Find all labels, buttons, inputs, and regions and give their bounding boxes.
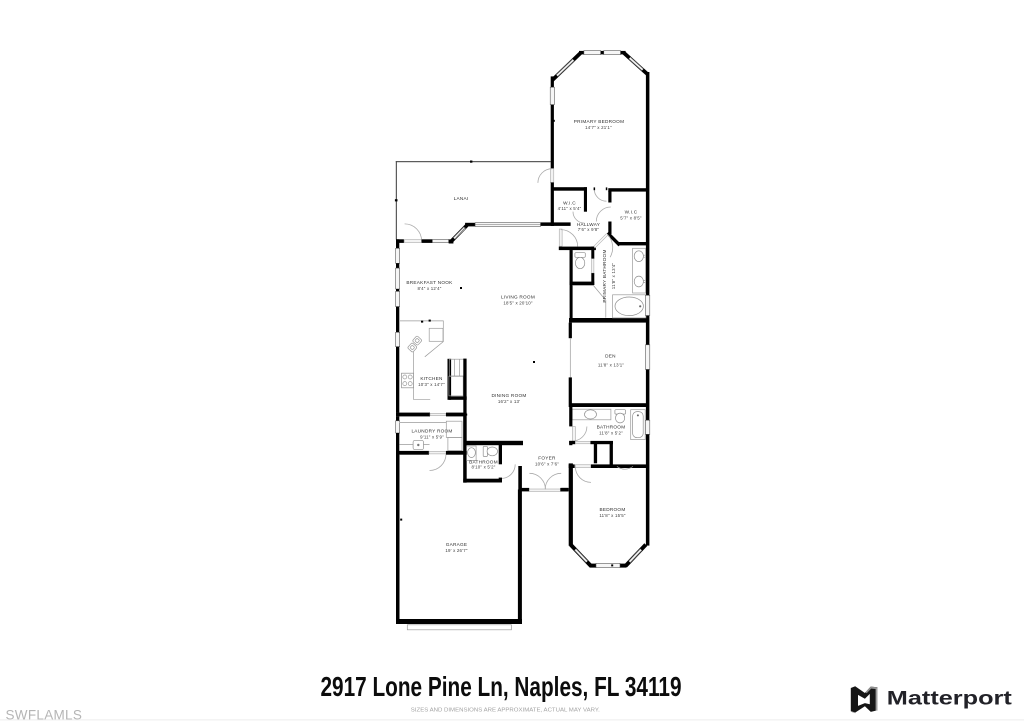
svg-text:5'7" x 8'5": 5'7" x 8'5" (620, 215, 642, 220)
svg-text:Matterport: Matterport (887, 688, 1013, 710)
svg-text:BEDROOM: BEDROOM (600, 507, 626, 512)
svg-text:LIVING ROOM: LIVING ROOM (501, 295, 535, 300)
svg-text:LANAI: LANAI (454, 196, 469, 201)
svg-text:HALLWAY: HALLWAY (577, 222, 601, 227)
svg-text:11'8" x 15'5": 11'8" x 15'5" (599, 513, 626, 518)
svg-text:8'4" x 12'4": 8'4" x 12'4" (417, 286, 441, 291)
svg-text:W.I.C: W.I.C (625, 209, 638, 214)
svg-text:9'11" x 5'9": 9'11" x 5'9" (420, 435, 444, 440)
svg-text:FOYER: FOYER (538, 456, 556, 461)
svg-text:DINING ROOM: DINING ROOM (491, 393, 526, 398)
svg-text:BATHROOM: BATHROOM (597, 425, 626, 430)
svg-text:PRIMARY BATHROOM: PRIMARY BATHROOM (602, 249, 607, 302)
svg-text:W.I.C: W.I.C (563, 201, 576, 206)
svg-text:19' x 26'7": 19' x 26'7" (445, 548, 468, 553)
svg-text:SIZES AND DIMENSIONS ARE APPRO: SIZES AND DIMENSIONS ARE APPROXIMATE, AC… (411, 708, 600, 714)
svg-text:7'6" x 9'8": 7'6" x 9'8" (578, 227, 600, 232)
svg-text:8'10" x 5'2": 8'10" x 5'2" (471, 465, 495, 470)
svg-text:14'7" x 21'1": 14'7" x 21'1" (585, 125, 612, 130)
svg-text:4'11" x 5'4": 4'11" x 5'4" (558, 206, 582, 211)
svg-text:KITCHEN: KITCHEN (420, 376, 442, 381)
svg-text:11'8" x 13'4": 11'8" x 13'4" (611, 263, 616, 290)
svg-text:PRIMARY BEDROOM: PRIMARY BEDROOM (574, 119, 624, 124)
svg-text:10'6" x 7'6": 10'6" x 7'6" (535, 462, 559, 467)
svg-text:18'5" x 20'10": 18'5" x 20'10" (503, 301, 533, 306)
svg-text:2917 Lone Pine Ln, Naples, FL: 2917 Lone Pine Ln, Naples, FL 34119 (321, 671, 682, 702)
svg-text:DEN: DEN (605, 354, 616, 359)
svg-text:BREAKFAST NOOK: BREAKFAST NOOK (406, 280, 453, 285)
svg-text:11'8" x 5'2": 11'8" x 5'2" (599, 431, 623, 436)
svg-text:11'8" x 13'1": 11'8" x 13'1" (598, 363, 625, 368)
svg-text:GARAGE: GARAGE (446, 542, 468, 547)
svg-text:10'3" x 14'7": 10'3" x 14'7" (418, 382, 445, 387)
svg-text:16'2" x 13': 16'2" x 13' (498, 399, 520, 404)
